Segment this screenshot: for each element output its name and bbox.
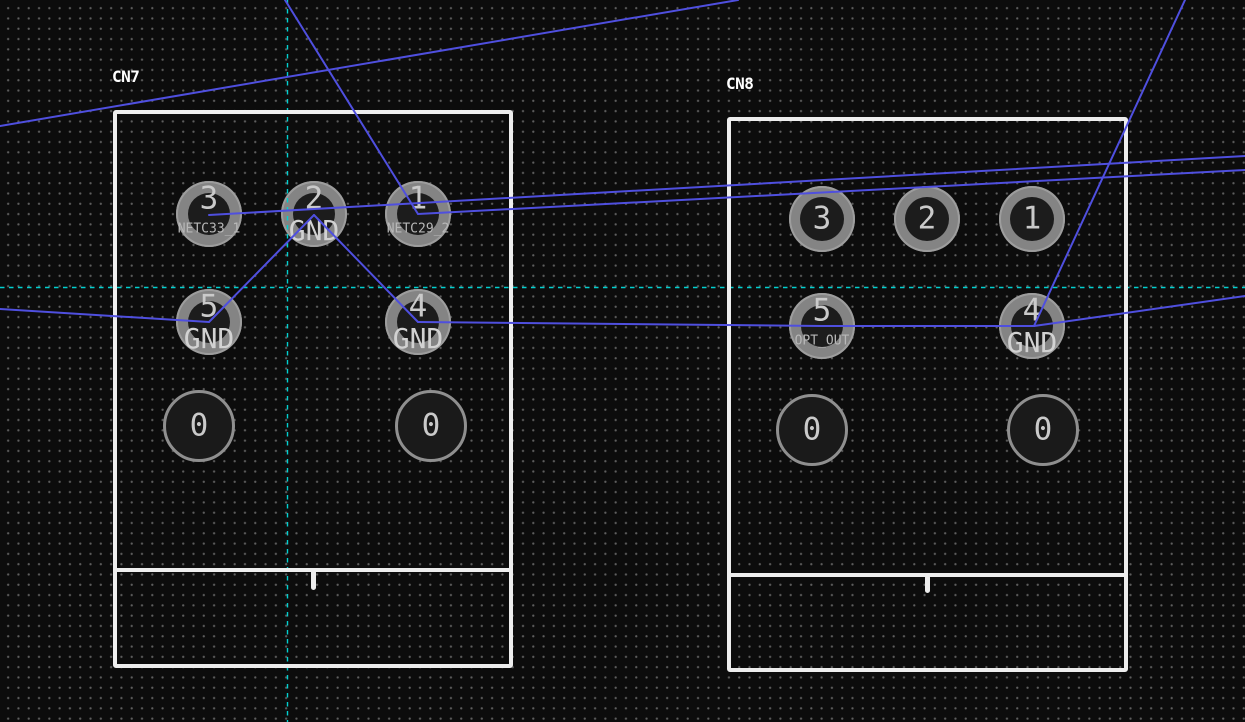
reference-label-cn8[interactable]: CN8 [726, 76, 753, 92]
footprint-notch-cn7 [311, 570, 316, 590]
silkscreen-layer: CN7CN8 [0, 0, 1245, 722]
reference-label-cn7[interactable]: CN7 [112, 69, 139, 85]
pcb-editor-canvas[interactable]: 3NETC33_12GND1NETC29_25GND4GND003215OPT_… [0, 0, 1245, 722]
footprint-notch-cn8 [925, 575, 930, 593]
